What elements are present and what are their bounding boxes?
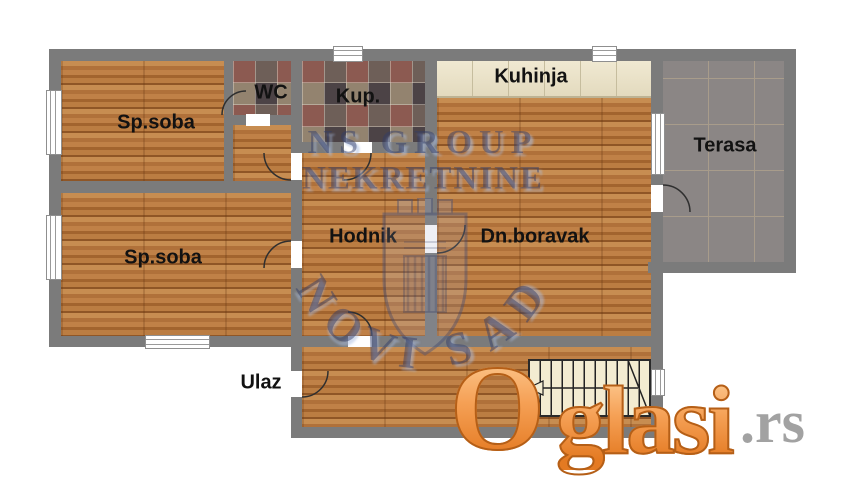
wc-label: WC: [254, 82, 287, 105]
terrace-door-arc: [663, 185, 690, 212]
bedroom2-door-arc: [264, 241, 291, 268]
wc-door-arc: [222, 91, 246, 115]
watermark-line1: NS GROUP: [308, 124, 539, 162]
entrance-label: Ulaz: [240, 372, 281, 395]
watermark-line2: NEKRETNINE: [302, 161, 544, 198]
bedroom2-label: Sp.soba: [124, 247, 202, 270]
kitchen-label: Kuhinja: [494, 66, 567, 89]
bathroom-label: Kup.: [336, 86, 380, 109]
terrace-label: Terasa: [693, 135, 756, 158]
floor-plan: NS GROUP NEKRETNINE N O V I S A D Sp.sob…: [0, 0, 843, 489]
vestibule-door-arc: [264, 153, 291, 180]
bedroom1-label: Sp.soba: [117, 112, 195, 135]
entrance-door-arc: [302, 371, 328, 397]
livingroom-label: Dn.boravak: [481, 226, 590, 249]
stairs-direction-arrow: [528, 381, 543, 395]
